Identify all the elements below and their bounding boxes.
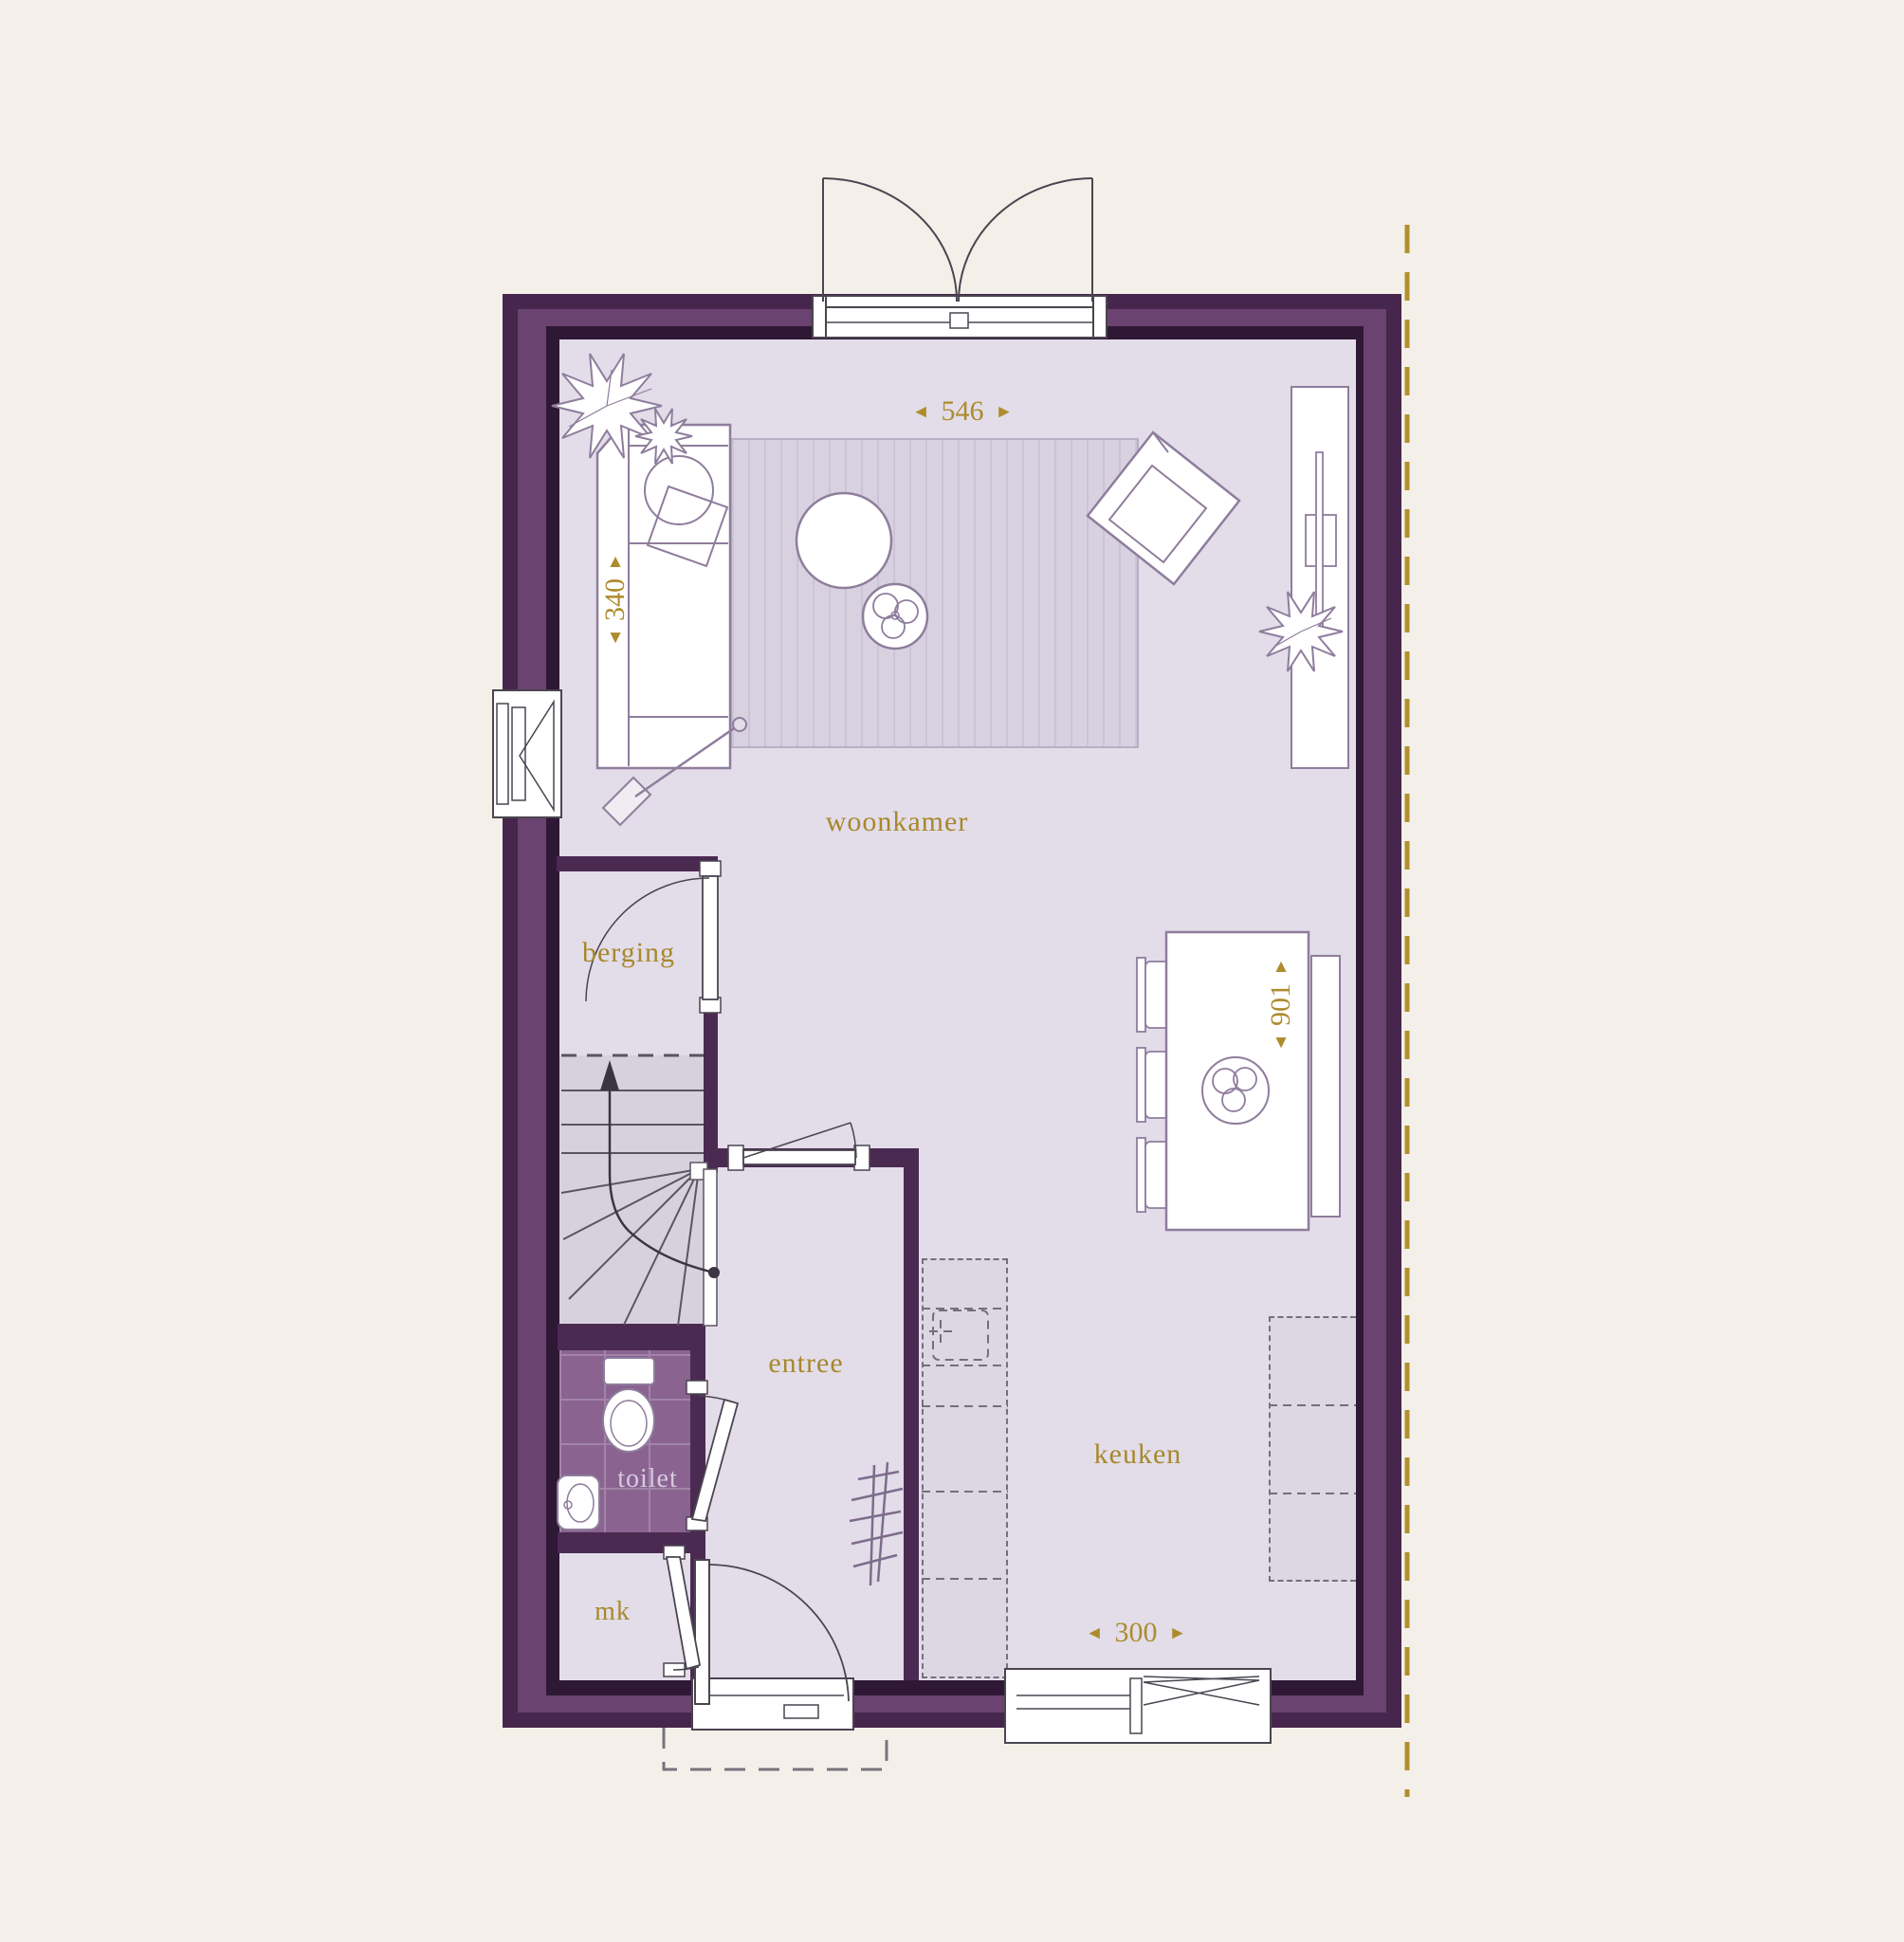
- dimension-value: 300: [1115, 1617, 1158, 1649]
- tv-cabinet: [1291, 387, 1348, 768]
- arrow-down-icon: ▼: [607, 629, 625, 647]
- french-doors: [813, 178, 1107, 338]
- window-kitchen: [1005, 1669, 1271, 1743]
- dimension-value: 546: [942, 395, 984, 428]
- arrow-left-icon: ◄: [912, 403, 930, 421]
- dimension-value: 901: [1265, 983, 1297, 1026]
- window-left: [493, 690, 561, 817]
- dimension-kitchen-width: ◄ 300 ►: [1041, 1617, 1231, 1649]
- room-label-living: woonkamer: [802, 806, 992, 838]
- tv-screen: [1316, 452, 1323, 629]
- staircase: [561, 1055, 720, 1326]
- hall-hatch-marks: [850, 1462, 903, 1585]
- plan-linework: [0, 0, 1904, 1942]
- dining-bench: [1311, 956, 1340, 1217]
- dimension-top-width: ◄ 546 ►: [868, 395, 1057, 428]
- dimension-value: 340: [599, 578, 632, 621]
- arrow-up-icon: ▲: [607, 553, 625, 571]
- stairs-up-arrow: [600, 1060, 619, 1090]
- room-label-mk: mk: [518, 1597, 707, 1627]
- room-label-toilet: toilet: [553, 1464, 742, 1494]
- floor-plan: woonkamer berging entree toilet mk keuke…: [0, 0, 1904, 1942]
- toilet-door: [687, 1381, 738, 1530]
- room-label-kitchen: keuken: [1043, 1438, 1233, 1471]
- coffee-tables: [796, 493, 927, 649]
- porch-outline: [664, 1728, 887, 1769]
- room-label-storage: berging: [534, 937, 723, 969]
- arrow-right-icon: ►: [1169, 1624, 1187, 1642]
- dimension-right-depth: ▲ 901 ▼: [1259, 958, 1303, 1052]
- arrow-right-icon: ►: [996, 403, 1014, 421]
- toilet-cistern: [604, 1358, 654, 1384]
- arrow-up-icon: ▲: [1272, 958, 1291, 976]
- dining-set: [1137, 932, 1340, 1230]
- toilet-fixtures: [558, 1358, 654, 1530]
- dimension-left-depth: ▲ 340 ▼: [594, 553, 637, 647]
- armchair: [1088, 432, 1239, 584]
- front-door: [692, 1560, 853, 1730]
- arrow-left-icon: ◄: [1086, 1624, 1104, 1642]
- room-label-hall: entree: [711, 1347, 901, 1380]
- arrow-down-icon: ▼: [1272, 1034, 1291, 1052]
- hall-door: [728, 1123, 870, 1170]
- plant-top-left: [552, 354, 692, 464]
